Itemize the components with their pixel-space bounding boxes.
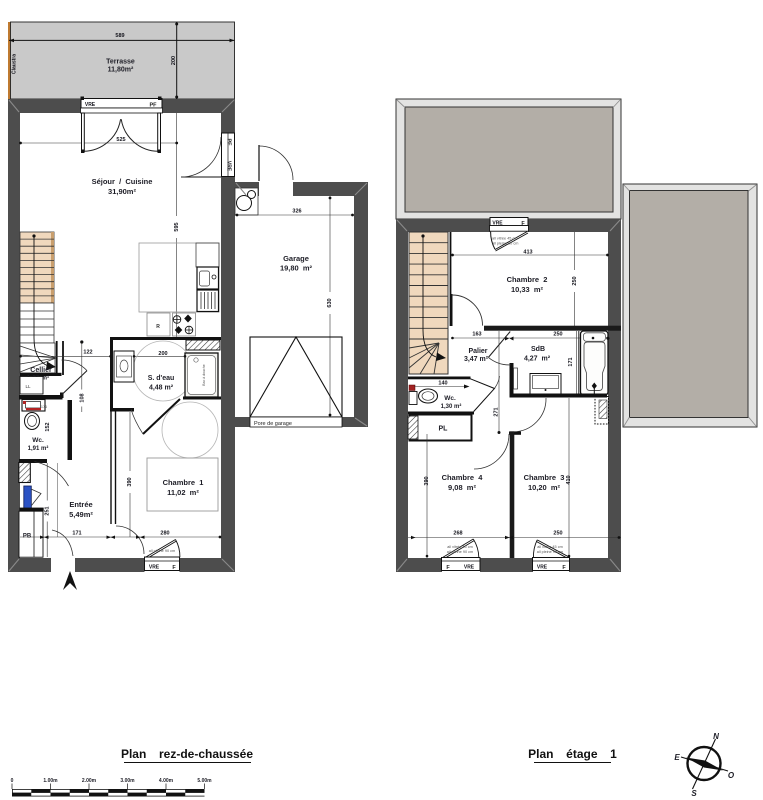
svg-text:Pore de garage: Pore de garage	[254, 421, 292, 427]
svg-text:11,02 m²: 11,02 m²	[167, 488, 199, 497]
svg-text:1,91 m²: 1,91 m²	[28, 445, 49, 452]
svg-text:140: 140	[438, 381, 447, 387]
svg-text:all vitrée 45 cm: all vitrée 45 cm	[492, 237, 518, 241]
svg-text:VRE: VRE	[464, 565, 475, 571]
svg-text:LL: LL	[25, 384, 31, 389]
svg-text:Claustra: Claustra	[12, 54, 18, 74]
svg-text:PF: PF	[226, 138, 232, 146]
svg-text:Chambre 2: Chambre 2	[507, 275, 548, 284]
svg-text:413: 413	[523, 250, 532, 256]
svg-text:3.00m: 3.00m	[120, 778, 135, 784]
svg-text:Chambre 4: Chambre 4	[442, 473, 484, 482]
svg-text:200: 200	[158, 351, 167, 357]
svg-text:11,80m²: 11,80m²	[108, 67, 134, 74]
svg-text:VRE: VRE	[537, 565, 548, 571]
svg-text:all pleine 90 cm: all pleine 90 cm	[537, 550, 563, 554]
svg-text:630: 630	[327, 298, 333, 307]
svg-text:N: N	[713, 732, 719, 741]
svg-text:Séjour / Cuisine: Séjour / Cuisine	[92, 177, 153, 186]
svg-text:3,47 m²: 3,47 m²	[464, 356, 489, 363]
svg-text:525: 525	[116, 137, 125, 143]
svg-text:Wc.: Wc.	[32, 437, 44, 444]
svg-text:R: R	[156, 324, 160, 330]
svg-text:19,80 m²: 19,80 m²	[280, 264, 313, 273]
svg-text:O: O	[728, 771, 735, 780]
svg-text:Cellier: Cellier	[30, 367, 52, 374]
svg-text:251: 251	[45, 506, 51, 515]
svg-text:all pleine 90 cm: all pleine 90 cm	[492, 242, 518, 246]
svg-text:4.00m: 4.00m	[159, 778, 174, 784]
svg-text:1.00m: 1.00m	[43, 778, 58, 784]
svg-text:Plan étage 1: Plan étage 1	[528, 747, 617, 761]
svg-text:all pleine 90 cm: all pleine 90 cm	[149, 549, 175, 553]
svg-text:Bac à douche: Bac à douche	[202, 364, 206, 385]
svg-text:PB: PB	[23, 534, 32, 540]
svg-text:5.00m: 5.00m	[197, 778, 212, 784]
svg-text:31,90m²: 31,90m²	[108, 187, 136, 196]
svg-text:Chambre 1: Chambre 1	[163, 478, 204, 487]
svg-text:176: 176	[41, 405, 47, 409]
svg-text:VRE: VRE	[226, 161, 232, 172]
svg-text:4,48 m²: 4,48 m²	[149, 385, 174, 392]
svg-text:326: 326	[292, 209, 301, 215]
svg-text:410: 410	[566, 475, 572, 484]
svg-text:all pleine 90 cm: all pleine 90 cm	[447, 550, 473, 554]
svg-text:VRE: VRE	[85, 102, 96, 108]
svg-text:163: 163	[472, 332, 481, 338]
svg-text:PF: PF	[149, 103, 157, 109]
svg-text:Garage: Garage	[283, 254, 309, 263]
svg-text:171: 171	[568, 357, 574, 366]
svg-text:595: 595	[174, 222, 180, 231]
svg-text:390: 390	[127, 477, 133, 486]
svg-text:all vitrée 45 cm: all vitrée 45 cm	[537, 545, 563, 549]
svg-text:S: S	[691, 789, 697, 798]
svg-text:VRE: VRE	[149, 565, 160, 571]
svg-text:VRE: VRE	[492, 221, 503, 227]
svg-text:250: 250	[553, 531, 562, 537]
svg-text:S. d'eau: S. d'eau	[148, 375, 175, 382]
svg-text:PL: PL	[439, 426, 449, 433]
svg-text:Chambre 3: Chambre 3	[524, 473, 565, 482]
svg-text:0: 0	[11, 778, 14, 784]
svg-text:Terrasse: Terrasse	[106, 59, 135, 66]
svg-text:10,20 m²: 10,20 m²	[528, 483, 561, 492]
svg-text:171: 171	[72, 531, 81, 537]
svg-text:390: 390	[424, 476, 430, 485]
svg-text:1,30 m²: 1,30 m²	[441, 403, 462, 410]
svg-text:10,33 m²: 10,33 m²	[511, 285, 544, 294]
svg-text:Entrée: Entrée	[69, 500, 92, 509]
svg-text:200: 200	[171, 56, 177, 65]
svg-text:5,49m²: 5,49m²	[69, 510, 93, 519]
svg-text:250: 250	[553, 332, 562, 338]
svg-text:152: 152	[45, 422, 51, 431]
svg-text:9,08 m²: 9,08 m²	[448, 483, 476, 492]
svg-text:Palier: Palier	[468, 348, 487, 355]
svg-text:271: 271	[493, 407, 499, 416]
svg-text:108: 108	[79, 393, 85, 402]
svg-text:122: 122	[83, 350, 92, 356]
svg-text:2.00m: 2.00m	[82, 778, 97, 784]
svg-text:589: 589	[115, 33, 124, 39]
svg-text:4,27 m²: 4,27 m²	[524, 356, 551, 363]
svg-text:E: E	[674, 753, 680, 762]
svg-text:all vitrée 45 cm: all vitrée 45 cm	[447, 545, 473, 549]
svg-text:268: 268	[453, 531, 462, 537]
svg-text:SdB: SdB	[531, 346, 545, 353]
svg-text:280: 280	[160, 531, 169, 537]
svg-text:Wc.: Wc.	[444, 395, 456, 402]
svg-text:Plan rez-de-chaussée: Plan rez-de-chaussée	[121, 747, 253, 761]
svg-text:250: 250	[572, 276, 578, 285]
